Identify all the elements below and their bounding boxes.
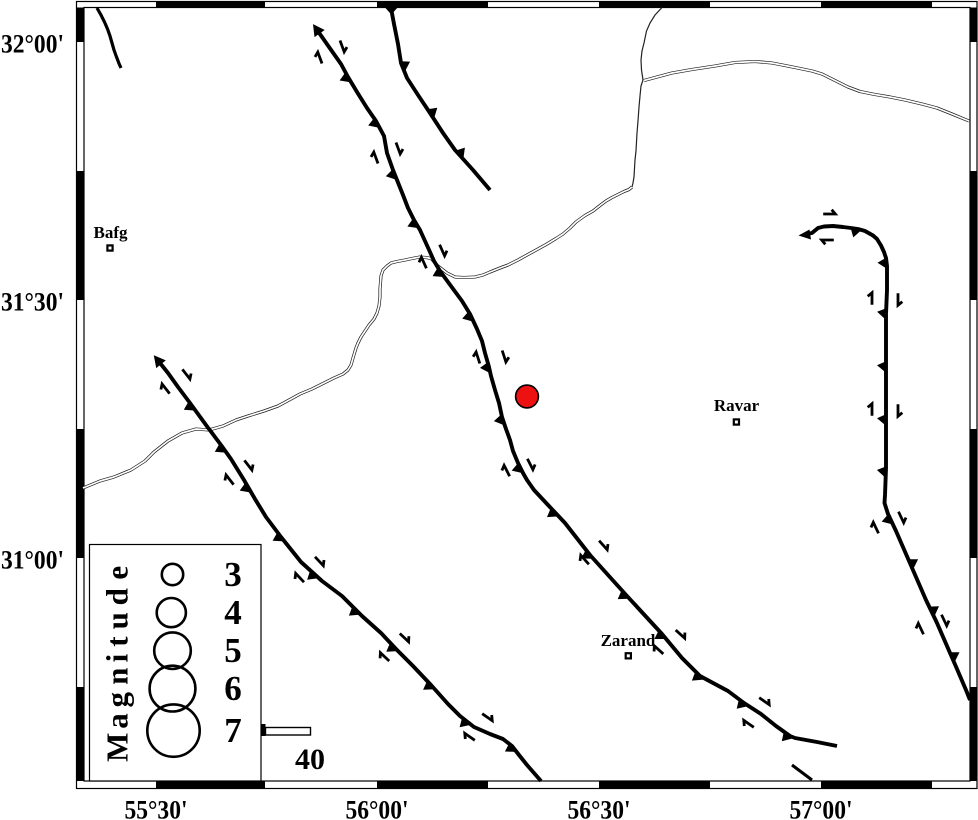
svg-text:7: 7	[224, 711, 242, 750]
svg-text:55°30': 55°30'	[125, 796, 188, 820]
svg-text:Zarand: Zarand	[601, 631, 656, 650]
svg-text:56°30': 56°30'	[568, 796, 631, 820]
svg-text:u: u	[100, 612, 135, 629]
svg-text:56°00': 56°00'	[346, 796, 409, 820]
svg-text:d: d	[100, 588, 135, 605]
svg-text:a: a	[100, 713, 135, 729]
svg-text:57°00': 57°00'	[790, 796, 853, 820]
svg-text:32°00': 32°00'	[1, 30, 64, 59]
svg-text:3: 3	[224, 555, 242, 594]
svg-text:31°30': 31°30'	[1, 288, 64, 317]
svg-text:Ravar: Ravar	[714, 396, 760, 415]
svg-text:5: 5	[224, 631, 242, 670]
svg-text:M: M	[100, 733, 135, 762]
svg-text:40: 40	[295, 743, 325, 776]
svg-text:6: 6	[224, 669, 242, 708]
svg-text:e: e	[100, 566, 135, 580]
svg-text:n: n	[100, 668, 135, 685]
svg-text:31°00': 31°00'	[1, 546, 64, 575]
svg-text:Bafg: Bafg	[94, 223, 129, 242]
svg-text:4: 4	[224, 593, 242, 632]
svg-text:g: g	[100, 692, 135, 708]
svg-text:i: i	[100, 653, 135, 662]
svg-text:t: t	[100, 636, 135, 647]
